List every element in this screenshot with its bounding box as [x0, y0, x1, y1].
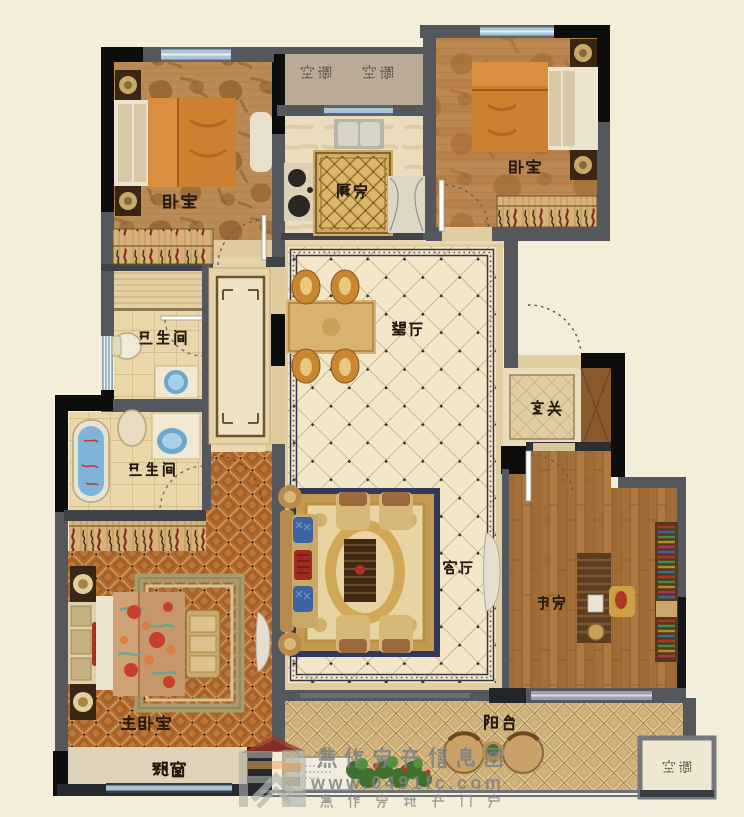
svg-text:www.0491fc.com: www.0491fc.com	[310, 773, 504, 793]
